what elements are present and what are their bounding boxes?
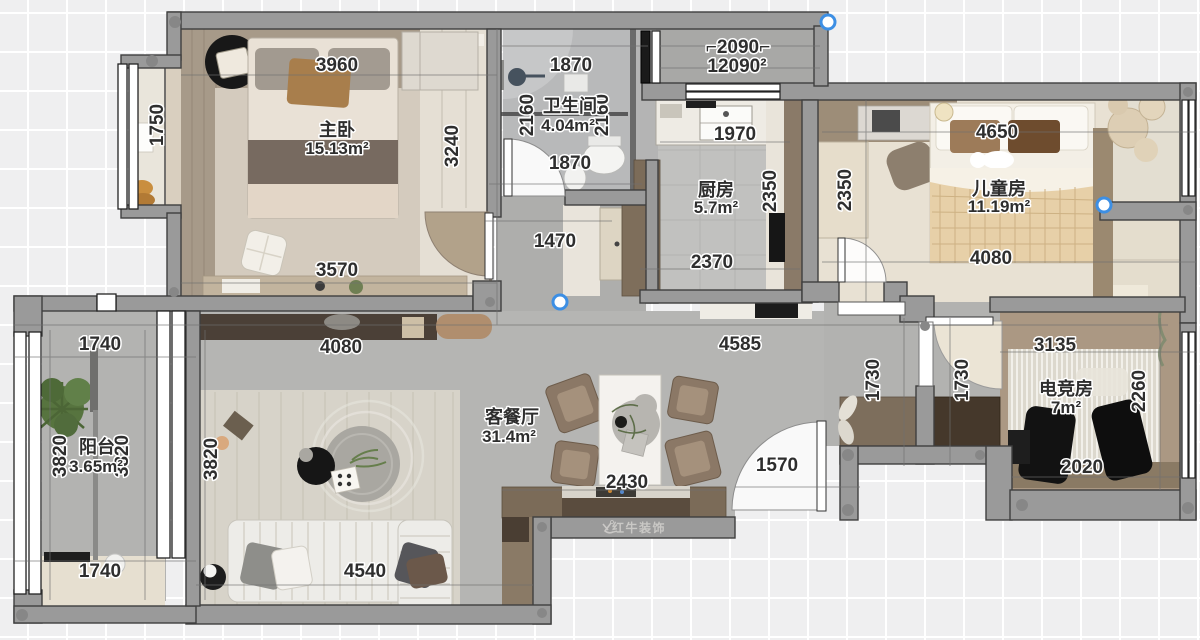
svg-text:3135: 3135: [1034, 335, 1077, 356]
svg-text:1750: 1750: [147, 104, 168, 146]
svg-text:4080: 4080: [320, 337, 362, 358]
svg-text:2160: 2160: [517, 94, 538, 136]
svg-text:卫生间: 卫生间: [543, 95, 597, 116]
svg-text:1870: 1870: [550, 55, 592, 76]
svg-text:2370: 2370: [691, 252, 733, 273]
svg-text:厨房: 厨房: [698, 179, 734, 200]
svg-text:2020: 2020: [1061, 457, 1103, 478]
svg-text:2350: 2350: [835, 169, 856, 211]
svg-text:2430: 2430: [606, 472, 648, 493]
svg-text:7m²: 7m²: [1051, 398, 1082, 417]
svg-text:1740: 1740: [79, 334, 121, 355]
svg-text:15.13m²: 15.13m²: [305, 139, 369, 158]
svg-text:儿童房: 儿童房: [971, 178, 1026, 199]
svg-text:3960: 3960: [316, 55, 358, 76]
svg-text:1470: 1470: [534, 231, 576, 252]
svg-text:1730: 1730: [863, 359, 884, 401]
svg-text:12090²: 12090²: [707, 56, 766, 77]
svg-text:3.65m²: 3.65m²: [69, 457, 123, 476]
svg-text:1570: 1570: [756, 455, 798, 476]
svg-text:客餐厅: 客餐厅: [485, 406, 539, 427]
svg-text:4.04m²: 4.04m²: [541, 116, 595, 135]
svg-text:3820: 3820: [50, 435, 71, 477]
svg-text:5.7m²: 5.7m²: [694, 198, 739, 217]
svg-text:2260: 2260: [1129, 370, 1150, 412]
svg-text:3820: 3820: [201, 438, 222, 480]
svg-text:31.4m²: 31.4m²: [482, 427, 536, 446]
svg-text:⌐2090⌐: ⌐2090⌐: [706, 37, 770, 58]
svg-text:4650: 4650: [976, 122, 1018, 143]
svg-text:阳台: 阳台: [79, 436, 115, 457]
svg-text:电竞房: 电竞房: [1039, 378, 1093, 399]
svg-text:2350: 2350: [760, 170, 781, 212]
svg-text:主卧: 主卧: [319, 119, 355, 140]
svg-text:红牛装饰: 红牛装饰: [612, 520, 666, 535]
svg-text:1870: 1870: [549, 153, 591, 174]
svg-text:4540: 4540: [344, 561, 386, 582]
svg-text:3570: 3570: [316, 260, 358, 281]
svg-text:3240: 3240: [442, 125, 463, 167]
svg-text:4080: 4080: [970, 248, 1012, 269]
svg-text:1740: 1740: [79, 561, 121, 582]
svg-text:4585: 4585: [719, 334, 762, 355]
svg-text:1730: 1730: [952, 359, 973, 401]
svg-text:1970: 1970: [714, 124, 756, 145]
svg-text:11.19m²: 11.19m²: [968, 197, 1031, 216]
